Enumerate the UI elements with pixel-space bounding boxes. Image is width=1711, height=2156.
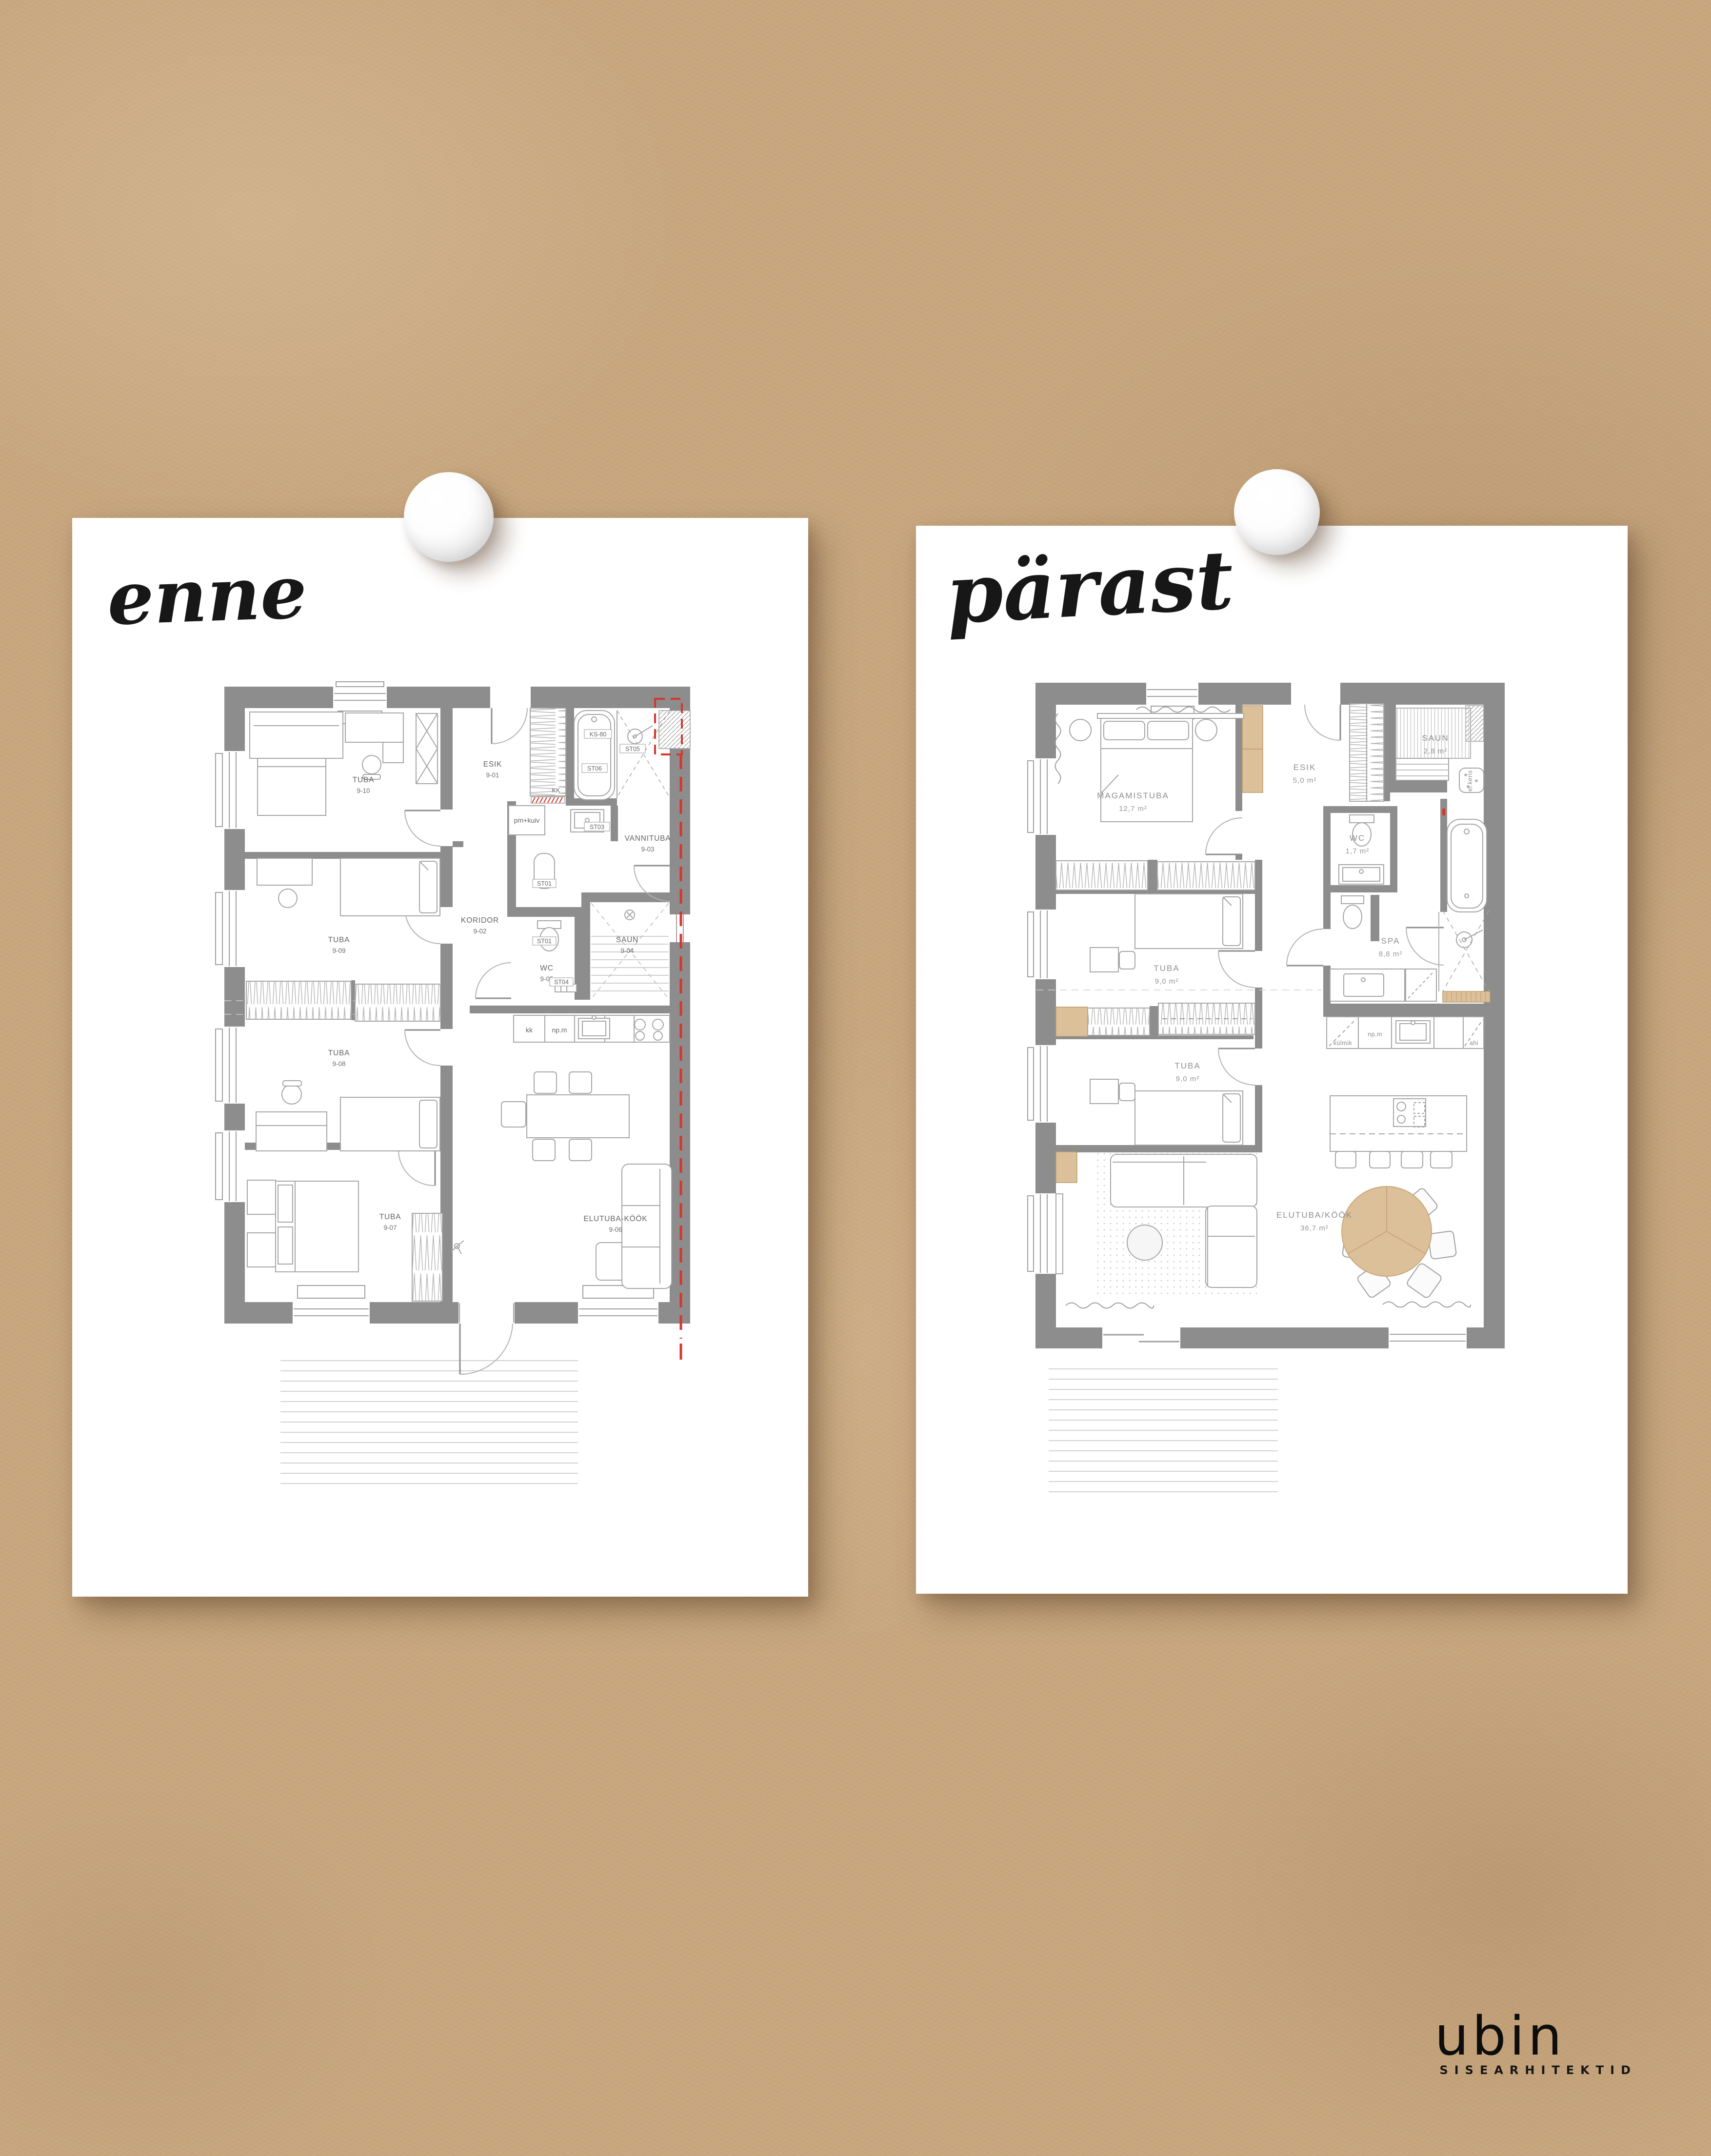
room-area: 9,0 m² [1155,977,1179,986]
room-code: 9-10 [357,787,370,794]
room-code: 9-01 [486,771,499,779]
fixture-label: ST01 [537,880,552,887]
push-pin-left [404,472,494,562]
title-after: pärast [944,540,1235,636]
room-label: TUBA [1154,964,1179,973]
pinboard-background: enne [0,0,1711,2156]
room-label: ELUTUBA-KÖÖK [583,1214,647,1223]
room-code: 9-08 [332,1060,345,1068]
terrace-deck [1049,1369,1278,1492]
card-before: enne [72,518,808,1597]
fixture-label: ST04 [554,979,569,986]
fixture-label: KS-80 [590,731,607,738]
room-label: ELUTUBA/KÖÖK [1276,1210,1353,1220]
room-label: TUBA [379,1213,401,1221]
room-area: 36,7 m² [1300,1224,1329,1232]
dining-set [1342,1187,1456,1299]
room-label: TUBA [353,776,375,784]
logo-brand: ubin [1434,2012,1637,2060]
room-label: TUBA [1174,1061,1200,1070]
room-code: 9-06 [609,1226,622,1233]
fixture-label: el.keris [1467,770,1473,791]
room-label: VANNITUBA [625,834,671,843]
room-code: 9-09 [332,947,345,954]
room-code: 9-04 [620,947,634,954]
room-area: 2,8 m² [1424,747,1448,755]
floor-plan-after: MAGAMISTUBA 12,7 m² ESIK 5,0 m² SAUN 2,8… [1027,671,1514,1500]
fixture-label: külmik [1333,1040,1353,1047]
room-label: WC [540,964,553,972]
room-label: KORIDOR [461,916,499,925]
logo-tagline: SISEARHITEKTID [1434,2063,1637,2077]
logo: ubin SISEARHITEKTID [1434,2012,1637,2077]
room-area: 8,8 m² [1379,950,1403,958]
room-label: WC [1350,833,1365,843]
room-code: 9-02 [473,928,486,935]
room-label: SAUN [616,936,638,944]
card-after: pärast [916,526,1628,1594]
terrace-deck [280,1361,578,1483]
title-before: enne [106,555,308,635]
fixture-label: np.m [552,1026,567,1034]
room-code: 9-07 [383,1224,397,1231]
floor-plan-before: TUBA 9-10 TUBA 9-09 TUBA 9-08 TUBA 9-07 … [215,663,702,1492]
room-area: 12,7 m² [1119,805,1147,813]
fixture-label: ahi [1470,1040,1478,1047]
room-label: MAGAMISTUBA [1097,791,1169,800]
fixture-label: KK [552,787,560,794]
room-code: 9-03 [641,846,654,853]
room-label: TUBA [328,936,350,944]
room-area: 1,7 m² [1346,847,1370,855]
fixture-label: kk [526,1026,533,1034]
fixture-label: np.m [1368,1031,1382,1038]
push-pin-right [1234,469,1320,555]
room-label: TUBA [328,1049,350,1057]
room-area: 5,0 m² [1293,776,1317,785]
room-label: ESIK [483,760,502,769]
room-label: ESIK [1293,763,1316,772]
fixture-label: ST01 [537,938,552,945]
fixture-label: pm+kuiv [514,816,540,824]
closets [246,981,440,1021]
room-label: SAUN [1422,733,1449,743]
fixture-label: ST06 [587,765,602,772]
room-label: SPA [1381,936,1400,946]
fixture-label: ST03 [590,824,604,831]
demolition-mark [1442,809,1445,815]
room-area: 9,0 m² [1176,1075,1200,1083]
fixture-label: ST05 [625,746,640,752]
